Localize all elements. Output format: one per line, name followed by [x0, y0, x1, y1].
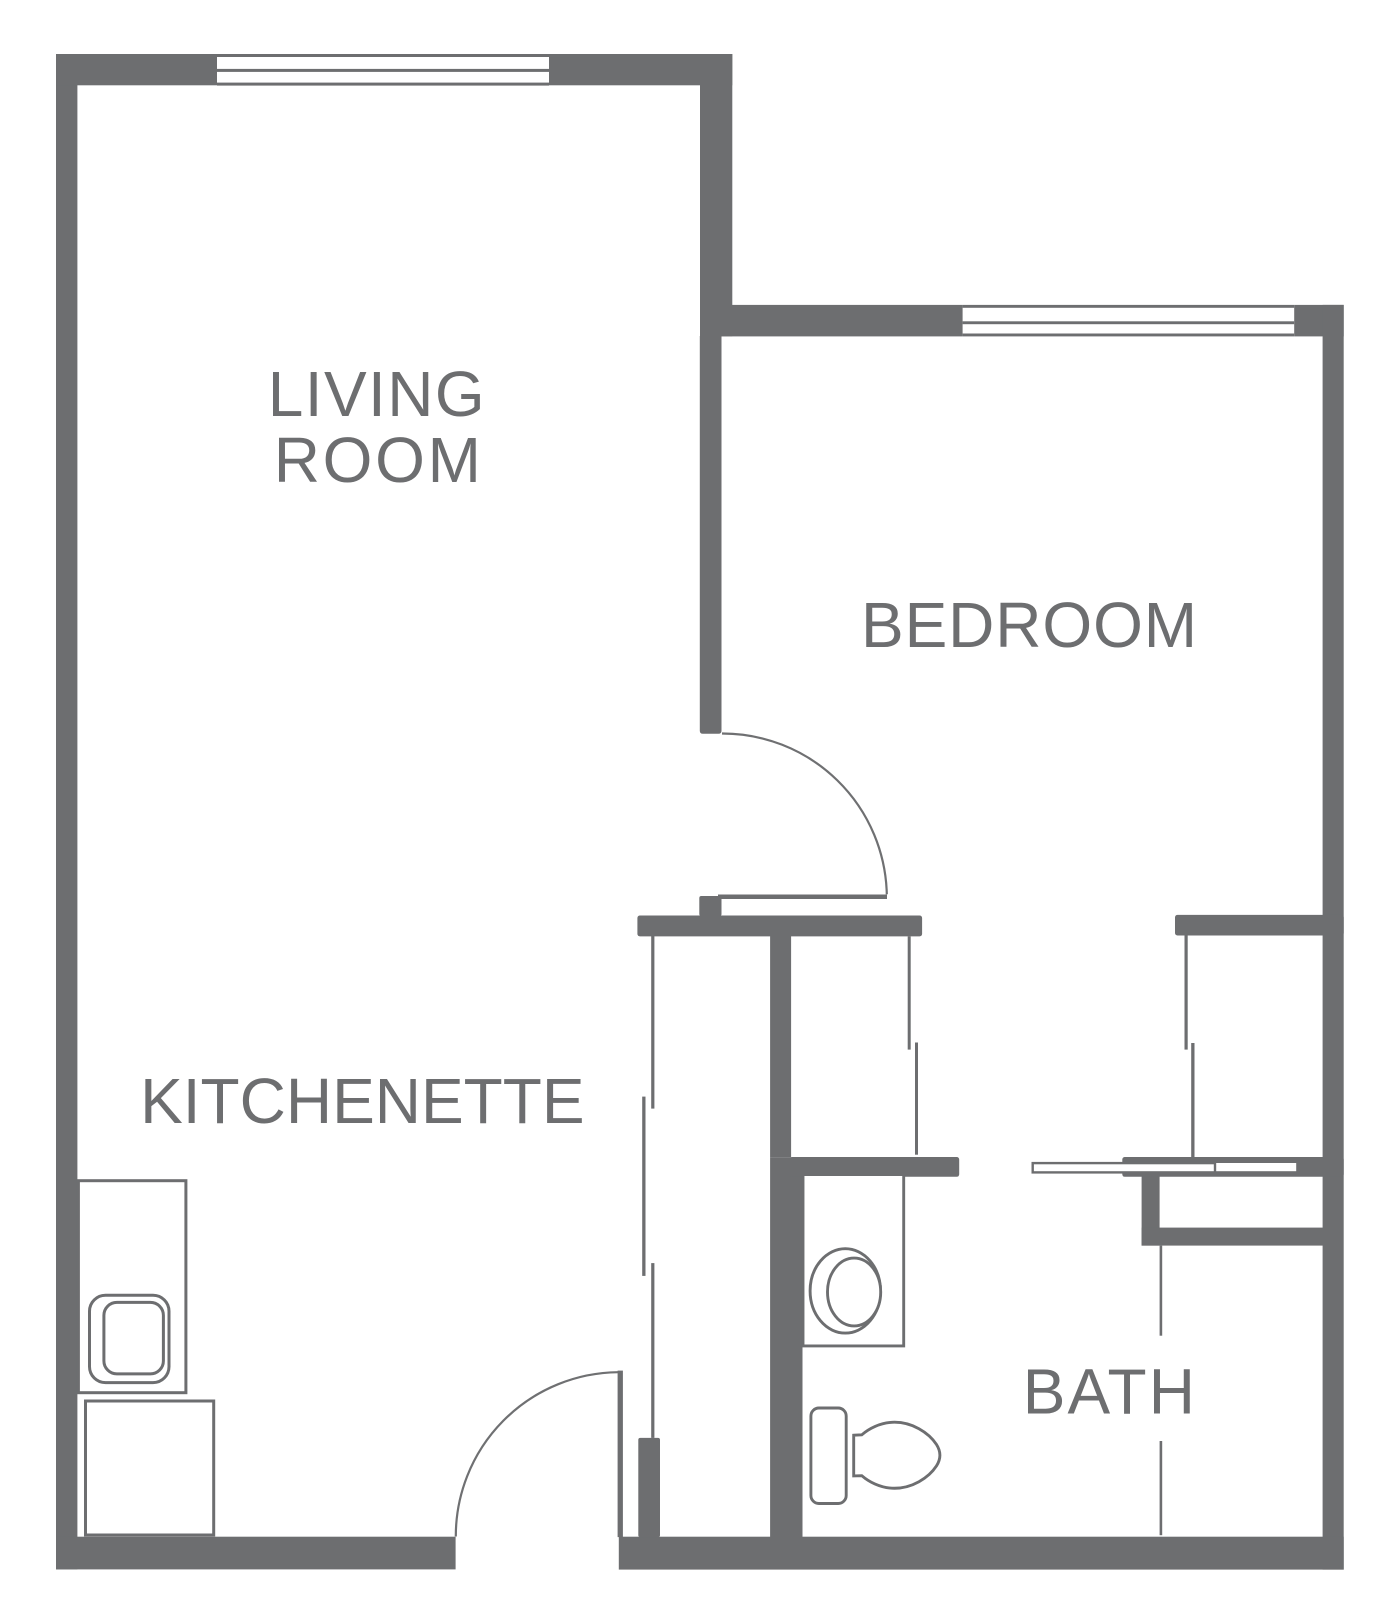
svg-text:ROOM: ROOM: [274, 424, 484, 496]
svg-text:LIVING: LIVING: [268, 358, 486, 430]
svg-text:BEDROOM: BEDROOM: [861, 589, 1198, 661]
svg-text:KITCHENETTE: KITCHENETTE: [140, 1065, 584, 1137]
svg-text:BATH: BATH: [1023, 1356, 1197, 1428]
